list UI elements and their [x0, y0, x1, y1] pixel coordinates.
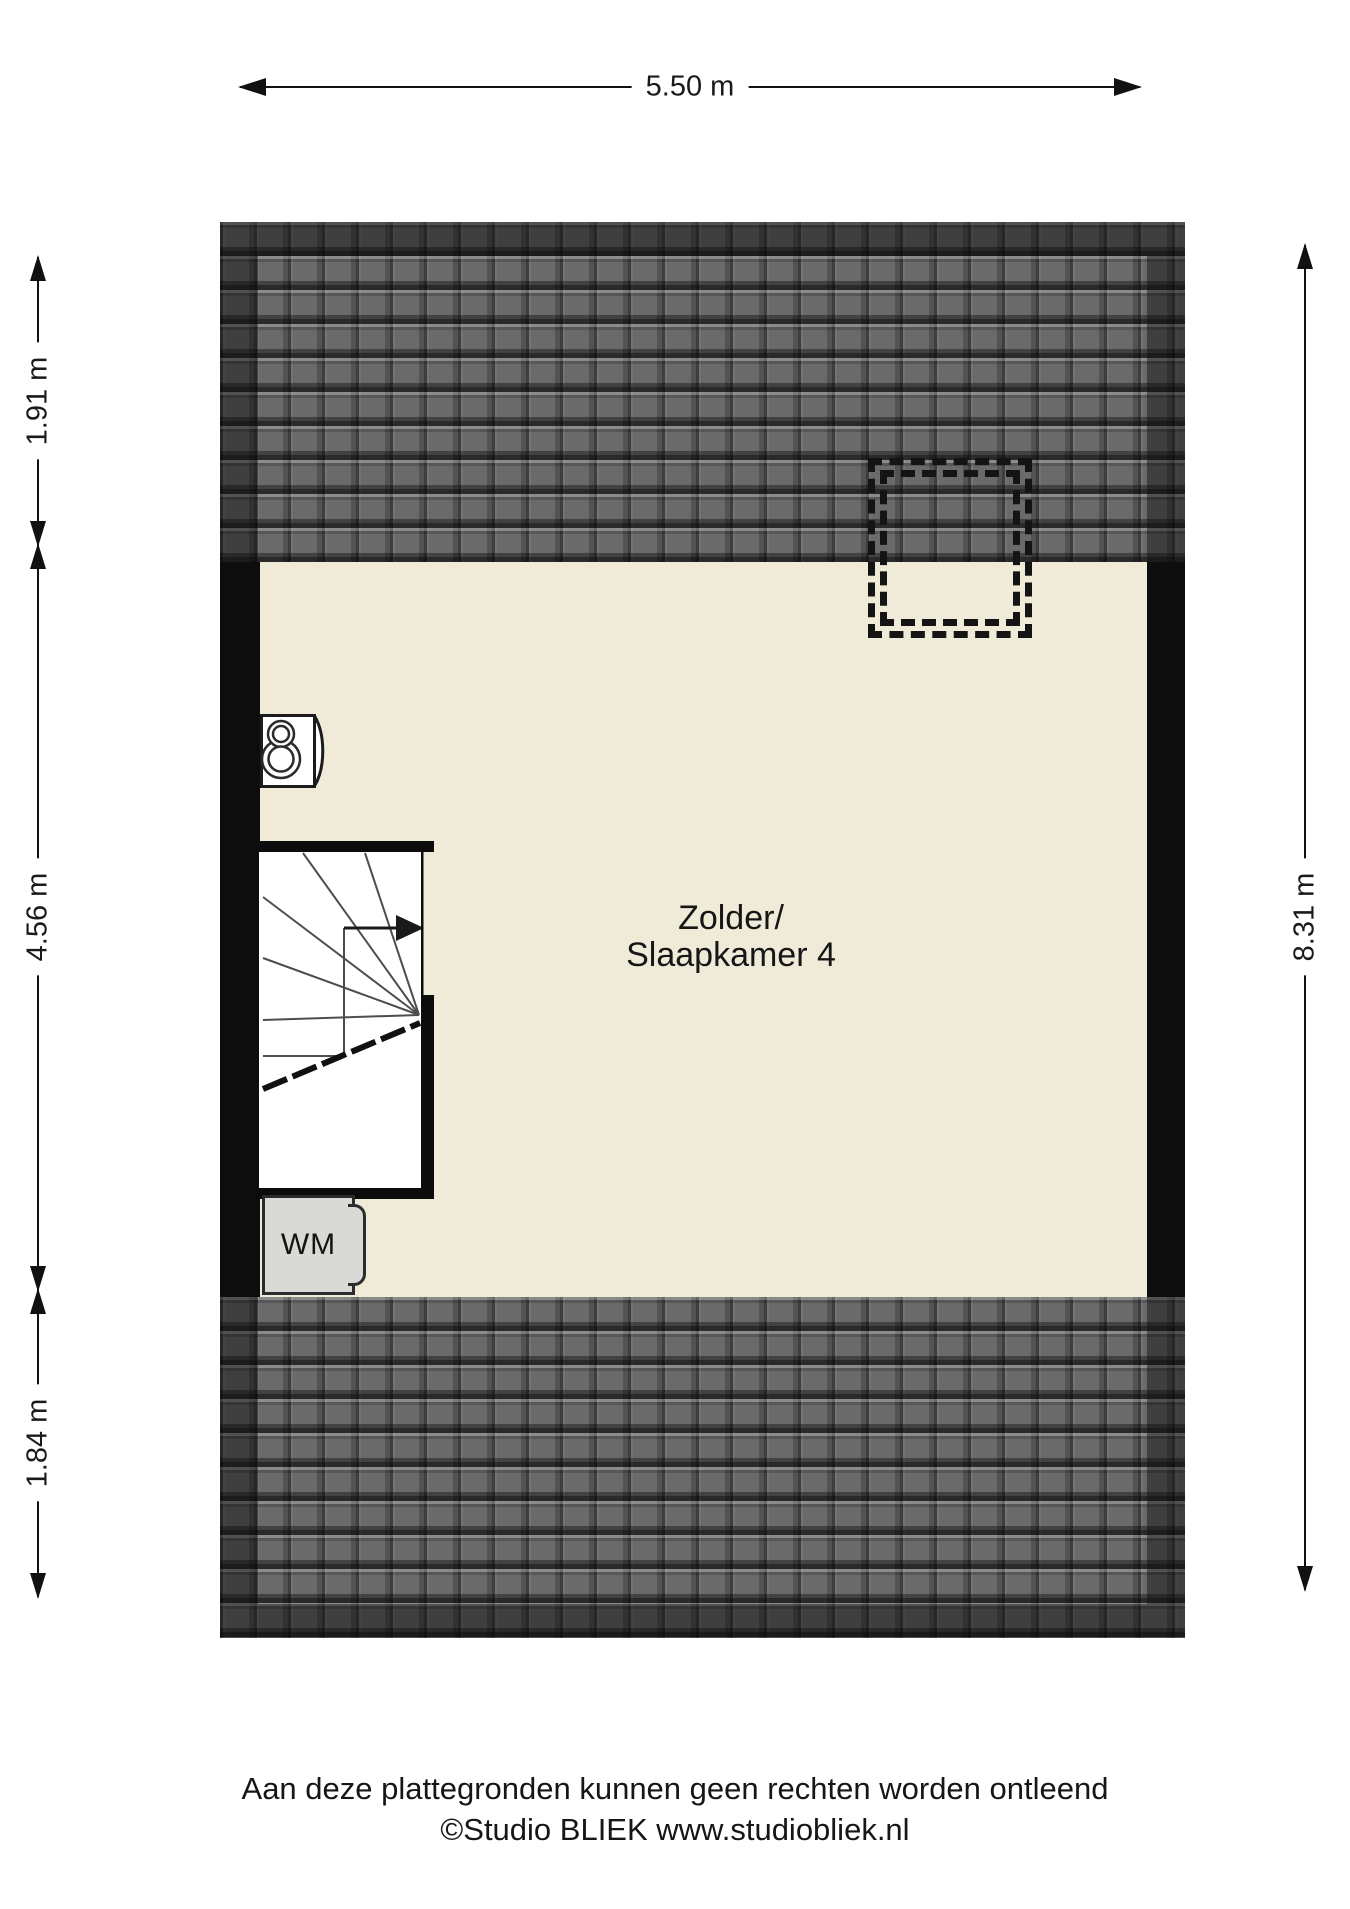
arrow-down-icon	[30, 1573, 46, 1599]
wall-right	[1147, 562, 1185, 1297]
dimension-label-top: 5.50 m	[632, 69, 749, 106]
washing-machine-label: WM	[281, 1228, 336, 1262]
roof-top-edge-shade	[220, 222, 1185, 562]
roof-bottom	[220, 1297, 1185, 1638]
skylight-dashed-outline	[868, 458, 1032, 638]
room-label-line2: Slaapkamer 4	[626, 937, 836, 974]
skylight-inner-outline	[880, 470, 1020, 626]
arrow-up-icon	[1297, 243, 1313, 269]
arrow-right-icon	[1114, 78, 1142, 96]
staircase	[245, 825, 457, 1225]
footer: Aan deze plattegronden kunnen geen recht…	[0, 1768, 1350, 1850]
roof-top	[220, 222, 1185, 562]
floor-plan: WM Zolder/ Slaapkamer 4	[220, 222, 1185, 1638]
roof-bottom-edge-shade	[220, 1297, 1185, 1638]
dimension-label-left-2: 4.56 m	[20, 859, 57, 976]
dimension-label-left-3: 1.84 m	[20, 1385, 57, 1502]
arrow-up-icon	[30, 1288, 46, 1314]
arrow-up-icon	[30, 543, 46, 569]
dimension-label-right: 8.31 m	[1287, 859, 1324, 976]
arrow-left-icon	[238, 78, 266, 96]
room-label: Zolder/ Slaapkamer 4	[626, 900, 836, 974]
washing-machine: WM	[262, 1195, 355, 1295]
boiler-icon	[260, 714, 328, 788]
footer-credit: ©Studio BLIEK www.studiobliek.nl	[0, 1809, 1350, 1850]
footer-disclaimer: Aan deze plattegronden kunnen geen recht…	[0, 1768, 1350, 1809]
floorplan-page: 5.50 m 1.91 m 4.56 m 1.84 m 8.31 m	[0, 0, 1350, 1909]
room-label-line1: Zolder/	[626, 900, 836, 937]
arrow-up-icon	[30, 255, 46, 281]
arrow-down-icon	[1297, 1566, 1313, 1592]
dimension-label-left-1: 1.91 m	[20, 343, 57, 460]
